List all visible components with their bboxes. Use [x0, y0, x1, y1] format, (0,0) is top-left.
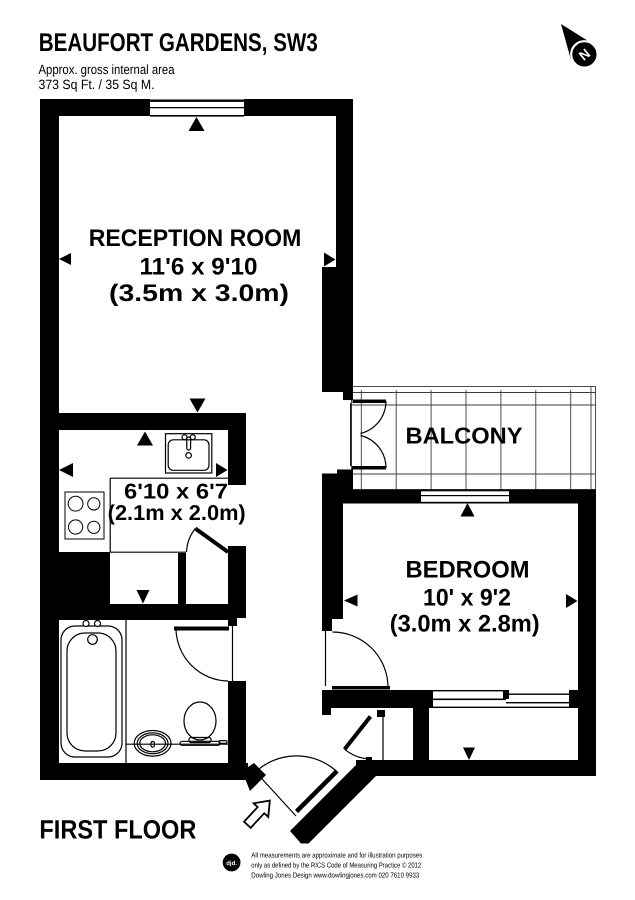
- svg-text:FIRST FLOOR: FIRST FLOOR: [39, 815, 196, 845]
- svg-text:Approx. gross internal area: Approx. gross internal area: [39, 62, 175, 77]
- svg-text:BEDROOM: BEDROOM: [406, 556, 530, 583]
- svg-text:Dowling Jones Design www.dowli: Dowling Jones Design www.dowlingjones.co…: [251, 871, 419, 880]
- svg-text:(3.5m x 3.0m): (3.5m x 3.0m): [109, 280, 289, 307]
- svg-text:djd.: djd.: [226, 860, 237, 867]
- svg-text:BALCONY: BALCONY: [406, 423, 523, 449]
- svg-text:10' x 9'2: 10' x 9'2: [423, 584, 511, 611]
- svg-text:RECEPTION ROOM: RECEPTION ROOM: [89, 225, 302, 252]
- svg-text:only as defined by the RICS Co: only as defined by the RICS Code of Meas…: [251, 861, 421, 870]
- svg-text:11'6 x 9'10: 11'6 x 9'10: [140, 253, 258, 280]
- svg-text:(3.0m x 2.8m): (3.0m x 2.8m): [390, 611, 540, 638]
- svg-text:6'10 x 6'7: 6'10 x 6'7: [124, 480, 228, 504]
- svg-text:373 Sq Ft. / 35 Sq M.: 373 Sq Ft. / 35 Sq M.: [39, 77, 155, 92]
- svg-text:All measurements are approxima: All measurements are approximate and for…: [251, 851, 422, 860]
- svg-text:(2.1m x 2.0m): (2.1m x 2.0m): [108, 501, 246, 525]
- svg-text:BEAUFORT GARDENS, SW3: BEAUFORT GARDENS, SW3: [39, 29, 318, 57]
